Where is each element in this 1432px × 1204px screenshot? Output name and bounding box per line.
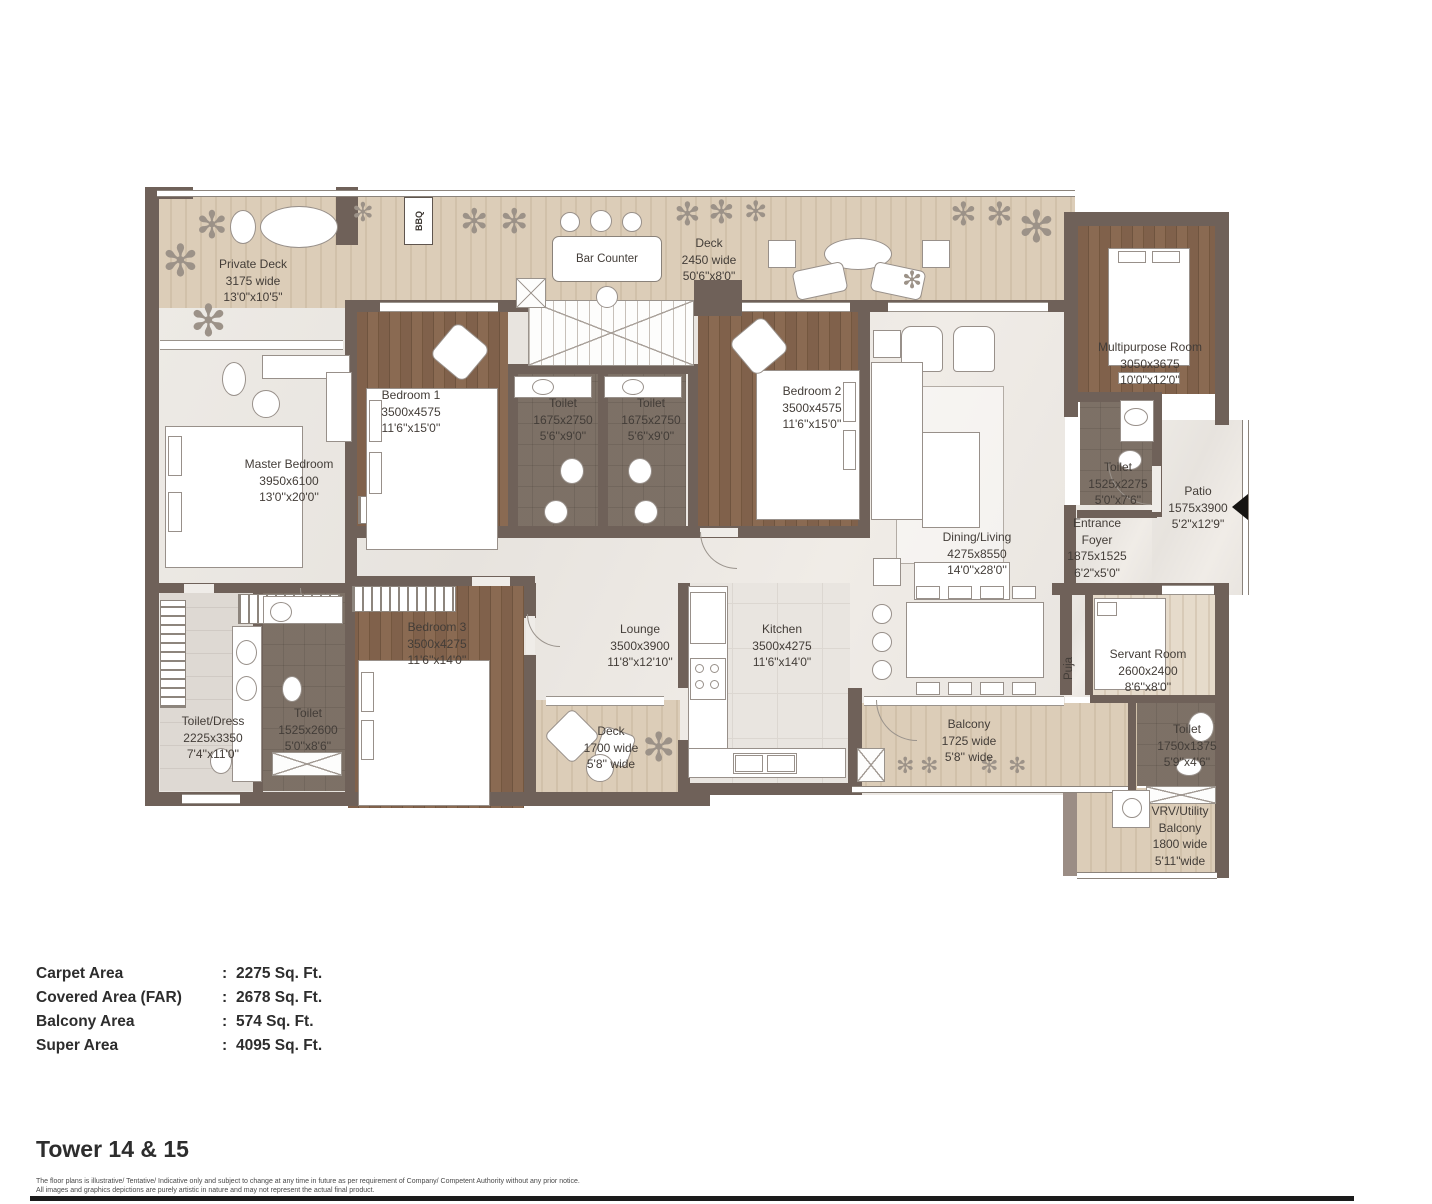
burner: [695, 680, 704, 689]
toilet-wc: [560, 458, 584, 484]
burner: [695, 664, 704, 673]
area-value: 574 Sq. Ft.: [236, 1010, 322, 1034]
window: [182, 794, 240, 804]
deck-table-oval: [260, 206, 338, 248]
room-dim-ft: 11'6''x15'0'': [381, 420, 440, 437]
room-label-toilet-mp: Toilet 1525x2275 5'0''x7'6'': [1088, 459, 1147, 509]
washbasin: [270, 602, 292, 622]
window: [888, 302, 1048, 312]
room-name: Kitchen: [752, 621, 811, 638]
wardrobe-hatch: [160, 600, 186, 708]
window: [160, 340, 343, 350]
kitchen-appliance: [690, 592, 726, 644]
washbasin: [622, 379, 644, 395]
pillow: [168, 436, 182, 476]
floor-balcony-arm: [1066, 703, 1128, 791]
bbq-grill: BBQ: [404, 197, 433, 245]
room-name-2: Foyer: [1067, 531, 1126, 548]
room-dim-ft: 8'6''x8'0'': [1110, 679, 1187, 696]
room-name: Master Bedroom: [245, 456, 334, 473]
area-colon: :: [222, 986, 236, 1010]
vrv-railing: [1077, 872, 1217, 879]
deck-table: [230, 210, 256, 244]
room-name: Toilet: [533, 395, 592, 412]
washbasin: [532, 379, 554, 395]
pillow: [843, 430, 856, 470]
area-colon: :: [222, 962, 236, 986]
area-statement: Carpet Area:2275 Sq. Ft. Covered Area (F…: [36, 962, 322, 1058]
room-dim-ft: 50'6"x8'0": [682, 268, 737, 285]
room-name: Bedroom 3: [407, 619, 466, 636]
area-colon: :: [222, 1034, 236, 1058]
wall: [688, 370, 698, 528]
pillow: [369, 452, 382, 494]
wall: [1215, 590, 1229, 878]
plant-icon: ✻: [460, 205, 489, 239]
washbasin: [236, 640, 257, 665]
bbq-label: BBQ: [414, 211, 424, 231]
plant-icon: ✻: [642, 728, 676, 768]
room-label-toilet-servant: Toilet 1750x1375 5'9''x4'6'': [1157, 721, 1216, 771]
room-label-bedroom-1: Bedroom 1 3500x4575 11'6''x15'0'': [381, 387, 440, 437]
plant-icon: ✻: [744, 198, 767, 226]
room-label-lounge: Lounge 3500x3900 11'8''x12'10'': [607, 621, 673, 671]
pillow: [843, 382, 856, 422]
washing-machine-drum: [1122, 798, 1142, 818]
room-dim-ft: 5'8'' wide: [584, 756, 639, 773]
room-dim-ft: 5'11"wide: [1151, 853, 1208, 870]
room-dim-mm: 3500x4275: [407, 636, 466, 653]
room-dim-mm: 1750x1375: [1157, 738, 1216, 755]
room-label-patio: Patio 1575x3900 5'2"x12'9": [1168, 483, 1227, 533]
room-label-toilet-1: Toilet 1675x2750 5'6''x9'0'': [533, 395, 592, 445]
door-opening: [1152, 466, 1161, 512]
room-dim-mm: 4275x8550: [943, 546, 1012, 563]
room-dim-ft: 5'9''x4'6'': [1157, 754, 1216, 771]
room-name: Toilet: [1088, 459, 1147, 476]
room-dim-mm: 2600x2400: [1110, 663, 1187, 680]
room-label-toilet-2: Toilet 1675x2750 5'6''x9'0'': [621, 395, 680, 445]
burner: [710, 664, 719, 673]
toilet-wc: [282, 676, 302, 702]
wall: [524, 583, 536, 618]
room-label-dining-living: Dining/Living 4275x8550 14'0''x28'0'': [943, 529, 1012, 579]
room-dim-ft: 5'0''x7'6'': [1088, 492, 1147, 509]
plant-icon: ✻: [190, 300, 227, 344]
room-dim-ft: 5'2"x12'9": [1168, 516, 1227, 533]
disclaimer-line-1: The floor plans is illustrative/ Tentati…: [36, 1178, 580, 1187]
room-name-2: Balcony: [1151, 819, 1208, 836]
sofa-l: [871, 362, 923, 520]
room-dim-mm: 2225x3350: [182, 730, 245, 747]
side-table: [873, 558, 901, 586]
deck-chair: [922, 240, 950, 268]
room-dim-ft: 5'6''x9'0'': [621, 428, 680, 445]
wall: [1085, 595, 1093, 695]
wall: [145, 187, 159, 805]
room-label-deck-bottom: Deck 1700 wide 5'8'' wide: [584, 723, 639, 773]
area-label: Carpet Area: [36, 962, 222, 986]
room-dim-mm: 1800 wide: [1151, 836, 1208, 853]
room-name: Deck: [584, 723, 639, 740]
room-label-puja: Puja: [1063, 620, 1075, 680]
area-row: Covered Area (FAR):2678 Sq. Ft.: [36, 986, 322, 1010]
area-value: 2678 Sq. Ft.: [236, 986, 322, 1010]
room-dim-mm: 1700 wide: [584, 740, 639, 757]
room-dim-ft: 11'6''x15'0'': [782, 416, 841, 433]
plant-icon: ✻: [986, 198, 1013, 230]
room-dim-mm: 1525x2275: [1088, 476, 1147, 493]
window: [380, 302, 498, 312]
accent-chair: [222, 362, 246, 396]
plant-icon: ✻: [352, 200, 374, 226]
dining-chair: [980, 586, 1004, 599]
room-dim-mm: 1525x2600: [278, 722, 337, 739]
room-label-vrv-utility-balcony: VRV/Utility Balcony 1800 wide 5'11"wide: [1151, 803, 1208, 869]
pillow: [1097, 602, 1117, 616]
room-name: Balcony: [942, 716, 997, 733]
dining-chair: [948, 586, 972, 599]
room-name: Toilet: [621, 395, 680, 412]
room-name: Dining/Living: [943, 529, 1012, 546]
floor-plan-page: Bar Counter BBQ ✻ ✻ ✻ ✻ ✻ ✻ ✻ ✻ ✻ ✻ ✻ ✻: [0, 0, 1432, 1204]
area-row: Super Area:4095 Sq. Ft.: [36, 1034, 322, 1058]
plant-icon: ✻: [196, 206, 228, 244]
wall: [524, 655, 536, 795]
wall: [1128, 700, 1136, 790]
plant-icon: ✻: [950, 198, 977, 230]
dining-seat: [872, 660, 892, 680]
washbasin: [236, 676, 257, 701]
room-label-kitchen: Kitchen 3500x4275 11'6"x14'0": [752, 621, 811, 671]
dining-seat: [872, 632, 892, 652]
plant-icon: ✻: [1008, 756, 1026, 778]
room-dim-ft: 5'0''x8'6'': [278, 738, 337, 755]
room-label-toilet-3: Toilet 1525x2600 5'0''x8'6'': [278, 705, 337, 755]
side-table: [252, 390, 280, 418]
skylight-hatch: [528, 300, 694, 366]
bar-counter: Bar Counter: [552, 236, 662, 282]
room-label-entrance-foyer: Entrance Foyer 1875x1525 6'2"x5'0": [1067, 515, 1126, 581]
plant-icon: ✻: [162, 240, 199, 284]
bar-counter-label: Bar Counter: [576, 253, 638, 265]
room-name: Servant Room: [1110, 646, 1187, 663]
shower-drain: [544, 500, 568, 524]
room-name: Patio: [1168, 483, 1227, 500]
bar-stool: [560, 212, 580, 232]
duct-box: [857, 748, 885, 782]
wall: [1064, 212, 1229, 226]
dining-table: [906, 602, 1044, 678]
room-dim-ft: 11'8''x12'10'': [607, 654, 673, 671]
wall: [1090, 695, 1228, 703]
room-dim-mm: 1725 wide: [942, 733, 997, 750]
shower-drain: [634, 500, 658, 524]
room-name: Deck: [682, 235, 737, 252]
room-dim-mm: 3950x6100: [245, 473, 334, 490]
entrance-arrow-icon: [1232, 494, 1248, 520]
room-name: VRV/Utility: [1151, 803, 1208, 820]
deck-chair: [768, 240, 796, 268]
room-dim-ft: 11'6"x14'0": [752, 654, 811, 671]
room-dim-mm: 3050x3675: [1098, 356, 1202, 373]
page-title: Tower 14 & 15: [36, 1136, 189, 1163]
armchair: [953, 326, 995, 372]
pillow: [369, 400, 382, 442]
room-dim-mm: 1675x2750: [621, 412, 680, 429]
area-value: 4095 Sq. Ft.: [236, 1034, 322, 1058]
dining-chair: [1012, 682, 1036, 695]
duct-box: [516, 278, 546, 308]
door-opening: [472, 577, 510, 586]
dining-chair: [948, 682, 972, 695]
plant-icon: ✻: [920, 756, 938, 778]
room-dim-ft: 14'0''x28'0'': [943, 562, 1012, 579]
room-name: Toilet: [278, 705, 337, 722]
footer-bar: [30, 1196, 1354, 1201]
room-dim-ft: 5'8'' wide: [942, 749, 997, 766]
room-dim-mm: 3500x4575: [782, 400, 841, 417]
sofa-corner: [326, 372, 352, 442]
bed-bedroom-3: [358, 660, 490, 806]
area-row: Balcony Area:574 Sq. Ft.: [36, 1010, 322, 1034]
room-label-bedroom-2: Bedroom 2 3500x4575 11'6''x15'0'': [782, 383, 841, 433]
plant-icon: ✻: [1018, 206, 1055, 250]
wall-brick: [1063, 788, 1077, 876]
room-dim-mm: 3500x3900: [607, 638, 673, 655]
plant-icon: ✻: [500, 205, 529, 239]
plant-icon: ✻: [674, 198, 701, 230]
room-dim-ft: 13'0''x20'0'': [245, 489, 334, 506]
dining-seat: [872, 604, 892, 624]
sink-bowl: [767, 755, 795, 772]
room-dim-ft: 11'6''x14'0'': [407, 652, 466, 669]
room-dim-ft: 7'4''x11'0'': [182, 746, 245, 763]
room-dim-mm: 1575x3900: [1168, 500, 1227, 517]
duct-box: [272, 752, 342, 776]
disclaimer-line-2: All images and graphics depictions are p…: [36, 1187, 580, 1196]
area-row: Carpet Area:2275 Sq. Ft.: [36, 962, 322, 986]
room-dim-mm: 1675x2750: [533, 412, 592, 429]
side-table: [873, 330, 901, 358]
burner: [710, 680, 719, 689]
room-name: Toilet: [1157, 721, 1216, 738]
duct-box: [1146, 786, 1216, 804]
pillow: [361, 720, 374, 760]
area-value: 2275 Sq. Ft.: [236, 962, 322, 986]
room-name: Entrance: [1067, 515, 1126, 532]
wall: [1215, 220, 1229, 425]
coffee-table: [922, 432, 980, 528]
bar-stool: [596, 286, 618, 308]
plant-icon: ✻: [896, 756, 914, 778]
room-dim-ft: 13'0"x10'5": [219, 289, 287, 306]
window: [742, 302, 850, 312]
room-name: Lounge: [607, 621, 673, 638]
room-label-multipurpose: Multipurpose Room 3050x3675 10'0''x12'0'…: [1098, 339, 1202, 389]
bar-stool: [622, 212, 642, 232]
room-dim-mm: 3500x4575: [381, 404, 440, 421]
room-dim-ft: 5'6''x9'0'': [533, 428, 592, 445]
room-name: Bedroom 1: [381, 387, 440, 404]
area-label: Covered Area (FAR): [36, 986, 222, 1010]
washbasin: [1124, 408, 1148, 426]
wall: [694, 280, 742, 316]
window: [1162, 585, 1214, 595]
room-name: Bedroom 2: [782, 383, 841, 400]
window: [546, 696, 664, 706]
room-dim-mm: 2450 wide: [682, 252, 737, 269]
room-dim-mm: 3175 wide: [219, 273, 287, 290]
room-dim-ft: 6'2"x5'0": [1067, 565, 1126, 582]
area-label: Balcony Area: [36, 1010, 222, 1034]
disclaimer: The floor plans is illustrative/ Tentati…: [36, 1178, 580, 1195]
toilet-wc: [628, 458, 652, 484]
door-opening: [184, 584, 214, 593]
plant-icon: ✻: [902, 268, 922, 292]
room-label-balcony: Balcony 1725 wide 5'8'' wide: [942, 716, 997, 766]
room-label-master-bedroom: Master Bedroom 3950x6100 13'0''x20'0'': [245, 456, 334, 506]
pillow: [361, 672, 374, 712]
pillow: [1152, 251, 1180, 263]
room-label-bedroom-3: Bedroom 3 3500x4275 11'6''x14'0'': [407, 619, 466, 669]
room-label-servant-room: Servant Room 2600x2400 8'6''x8'0'': [1110, 646, 1187, 696]
room-name: Private Deck: [219, 256, 287, 273]
area-label: Super Area: [36, 1034, 222, 1058]
area-colon: :: [222, 1010, 236, 1034]
room-dim-mm: 1875x1525: [1067, 548, 1126, 565]
room-dim-ft: 10'0''x12'0'': [1098, 372, 1202, 389]
plant-icon: ✻: [708, 196, 735, 228]
wardrobe-hatch: [352, 586, 456, 612]
sink-bowl: [735, 755, 763, 772]
room-dim-mm: 3500x4275: [752, 638, 811, 655]
room-label-deck: Deck 2450 wide 50'6"x8'0": [682, 235, 737, 285]
wall: [678, 783, 862, 795]
dining-chair: [980, 682, 1004, 695]
room-name: Multipurpose Room: [1098, 339, 1202, 356]
balcony-railing: [852, 786, 1128, 793]
room-label-private-deck: Private Deck 3175 wide 13'0"x10'5": [219, 256, 287, 306]
dining-chair: [916, 586, 940, 599]
bar-stool: [590, 210, 612, 232]
room-label-toilet-dress: Toilet/Dress 2225x3350 7'4''x11'0'': [182, 713, 245, 763]
pillow: [168, 492, 182, 532]
deck-railing-top: [157, 190, 1075, 197]
pillow: [1118, 251, 1146, 263]
dining-chair: [916, 682, 940, 695]
wall: [1064, 212, 1078, 417]
room-name: Toilet/Dress: [182, 713, 245, 730]
dining-chair: [1012, 586, 1036, 599]
